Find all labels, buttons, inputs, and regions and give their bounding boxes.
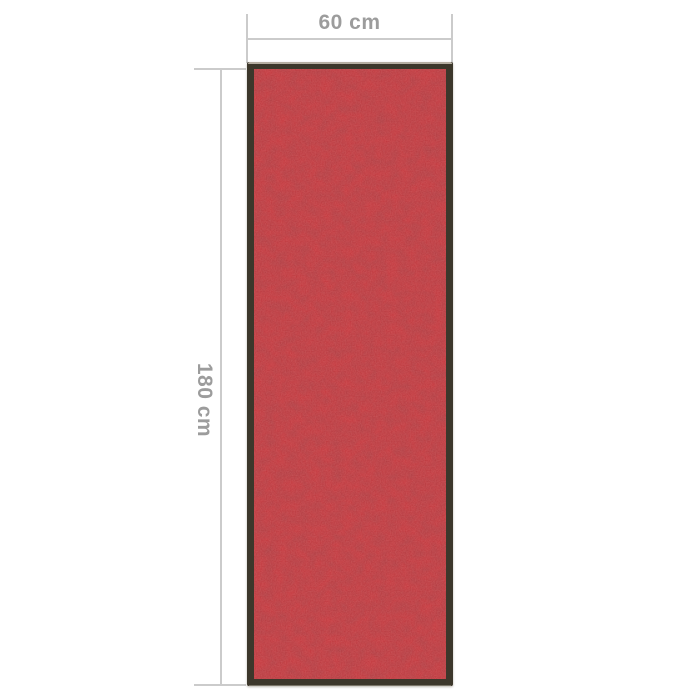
doormat-top-edge-highlight bbox=[248, 62, 452, 64]
height-dimension-tick-bottom bbox=[194, 684, 246, 686]
width-dimension-line bbox=[247, 38, 452, 40]
width-dimension-label: 60 cm bbox=[247, 9, 452, 36]
height-dimension-label: 180 cm bbox=[192, 363, 216, 437]
width-dimension-tick-left bbox=[246, 14, 248, 63]
width-dimension-tick-right bbox=[451, 14, 453, 63]
doormat-fine-grain-texture bbox=[254, 69, 446, 679]
product-dimension-diagram: 60 cm 180 cm bbox=[0, 0, 700, 700]
height-dimension-tick-top bbox=[194, 68, 246, 70]
doormat-bottom-edge-highlight bbox=[249, 685, 451, 686]
doormat bbox=[247, 62, 453, 686]
doormat-surface bbox=[254, 69, 446, 679]
height-dimension-line bbox=[220, 68, 222, 685]
